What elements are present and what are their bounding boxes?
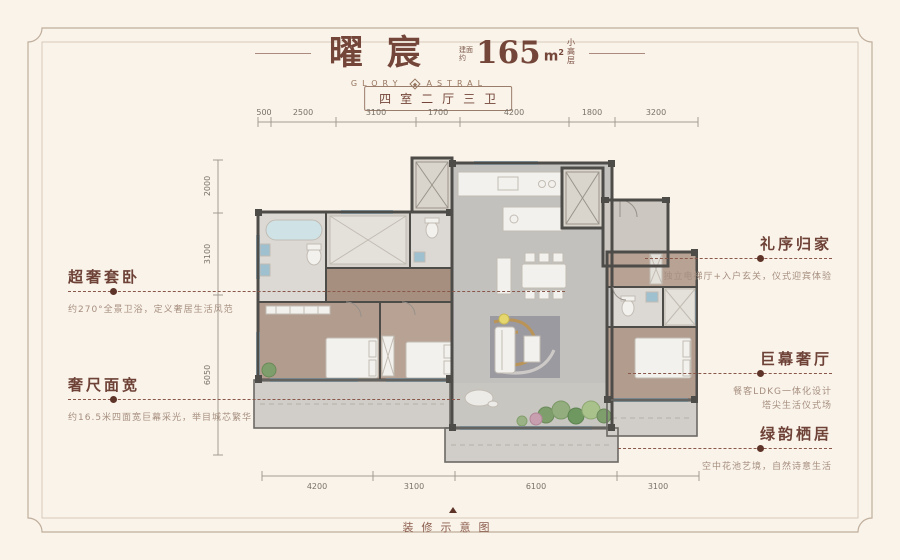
dimension-line-bottom: 4200 3100 6100 3100 (258, 470, 704, 494)
toilet-icon (622, 300, 634, 316)
feature-title: 巨幕奢厅 (733, 348, 832, 369)
floor-plan (246, 140, 698, 470)
svg-text:4200: 4200 (504, 108, 524, 117)
svg-text:3100: 3100 (648, 482, 668, 491)
svg-text:4200: 4200 (307, 482, 327, 491)
kitchen-island (503, 207, 562, 231)
feature-title: 礼序归家 (663, 233, 832, 254)
caption: 装修示意图 (0, 519, 900, 535)
title-flourish-left (255, 53, 311, 54)
area-unit: m2 (544, 48, 564, 67)
coffee-table (524, 336, 540, 362)
sofa (495, 327, 515, 373)
footer: 装修示意图 (0, 498, 900, 535)
feature-width: 奢尺面宽 约16.5米四面宽巨幕采光，举目城芯繁华 (68, 374, 252, 426)
feature-title: 奢尺面宽 (68, 374, 252, 395)
area-value: 165 (476, 40, 541, 66)
feature-desc: 独立电梯厅+入户玄关，仪式迎宾体验 (663, 271, 832, 285)
poster: 曜宸 建面 约 165 m2 小 高 层 GLORY ASTRAL 四室二厅三卫 (0, 0, 900, 560)
feature-livingroom: 巨幕奢厅 餐客LDKG一体化设计 塔尖生活仪式场 (733, 348, 832, 413)
svg-text:6100: 6100 (526, 482, 546, 491)
feature-desc: 约270°全景卫浴，定义奢居生活风范 (68, 304, 234, 318)
feature-desc: 约16.5米四面宽巨幕采光，举目城芯繁华 (68, 412, 252, 426)
area-info: 建面 约 165 m2 小 高 层 (459, 39, 575, 66)
feature-master-suite: 超奢套卧 约270°全景卫浴，定义奢居生活风范 (68, 266, 234, 318)
feature-desc: 餐客LDKG一体化设计 (733, 386, 832, 400)
area-prefix: 建面 约 (459, 46, 473, 67)
feature-title: 绿韵栖居 (702, 423, 832, 444)
dining-table (522, 264, 566, 288)
sideboard (497, 258, 511, 294)
svg-text:3100: 3100 (366, 108, 386, 117)
sink-icon (260, 244, 270, 256)
feature-title: 超奢套卧 (68, 266, 234, 287)
feature-garden: 绿韵栖居 空中花池艺境，自然诗意生活 (702, 423, 832, 475)
feature-entry: 礼序归家 独立电梯厅+入户玄关，仪式迎宾体验 (663, 233, 832, 285)
svg-text:2500: 2500 (293, 108, 313, 117)
accent-stool (499, 314, 509, 324)
svg-text:1800: 1800 (582, 108, 602, 117)
feature-desc: 空中花池艺境，自然诗意生活 (702, 461, 832, 475)
toilet-icon (426, 222, 438, 238)
svg-text:500: 500 (256, 108, 271, 117)
building-type: 小 高 层 (567, 39, 575, 66)
bathtub (266, 220, 322, 240)
triangle-marker-icon (449, 507, 457, 513)
plant-icon (262, 363, 276, 377)
page-title: 曜宸 (325, 36, 445, 70)
dimension-line-top: 500 2500 3100 1700 4200 1800 3200 (250, 106, 702, 130)
kitchen-counter (458, 172, 562, 196)
svg-text:3200: 3200 (646, 108, 666, 117)
svg-text:1700: 1700 (428, 108, 448, 117)
header: 曜宸 建面 约 165 m2 小 高 层 (0, 36, 900, 70)
svg-text:3100: 3100 (404, 482, 424, 491)
feature-desc-2: 塔尖生活仪式场 (733, 400, 832, 414)
svg-text:3100: 3100 (203, 244, 212, 264)
svg-text:2000: 2000 (203, 176, 212, 196)
title-flourish-right (589, 53, 645, 54)
